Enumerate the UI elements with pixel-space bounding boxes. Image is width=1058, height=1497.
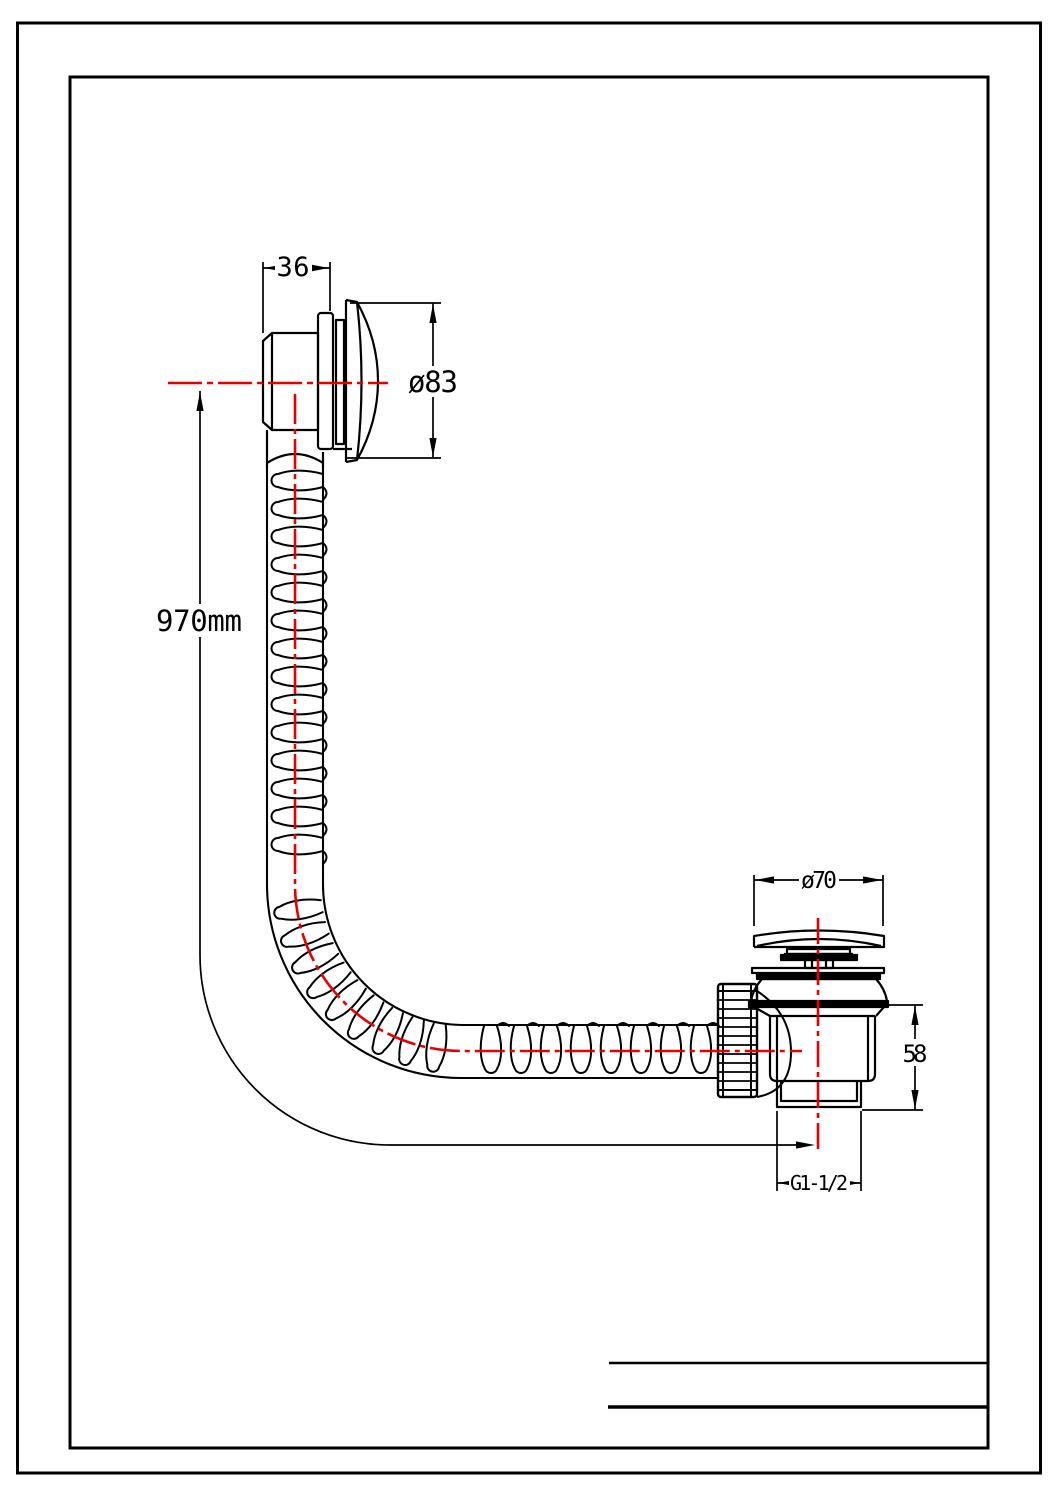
arrowhead [863,876,882,883]
dim-overflow-diameter-label: ø83 [408,365,458,399]
arrowhead [196,392,203,411]
hose-corrugations-horizontal [481,1023,719,1073]
overflow-flange [318,313,333,449]
arrowhead [911,1006,918,1025]
overflow-body [263,333,318,430]
centerlines [168,383,818,1154]
arrowhead [755,876,774,883]
dimension-label-masks [154,252,930,1195]
blueprint-page: 36 ø83 970mm ø70 58 G1-1/2 [0,0,1058,1497]
title-block [608,1363,988,1407]
arrowhead [911,1090,918,1109]
hose-corrugations-vertical [272,471,327,864]
dim-hose-length-label: 970mm [156,604,242,638]
arrowhead [429,438,436,457]
waste-fitting [718,931,888,1108]
dim-outlet-thread-label: G1-1/2 [790,1171,848,1195]
overflow-dome-cap [346,300,378,462]
outer-border [18,23,1041,1473]
hose-inner-edge [323,468,718,1025]
dim-waste-height-label: 58 [903,1040,928,1068]
inner-border [70,77,988,1448]
arrowhead [429,304,436,323]
flexible-hose [267,468,719,1078]
drawing-canvas: 36 ø83 970mm ø70 58 G1-1/2 [0,0,1058,1497]
centerline-hose [295,394,802,1051]
arrowhead [310,264,329,271]
hose-outer-edge [267,468,718,1078]
dim-overflow-width-label: 36 [277,252,310,283]
arrowhead [796,1141,815,1148]
dim-waste-cap-diameter-label: ø70 [801,868,837,894]
